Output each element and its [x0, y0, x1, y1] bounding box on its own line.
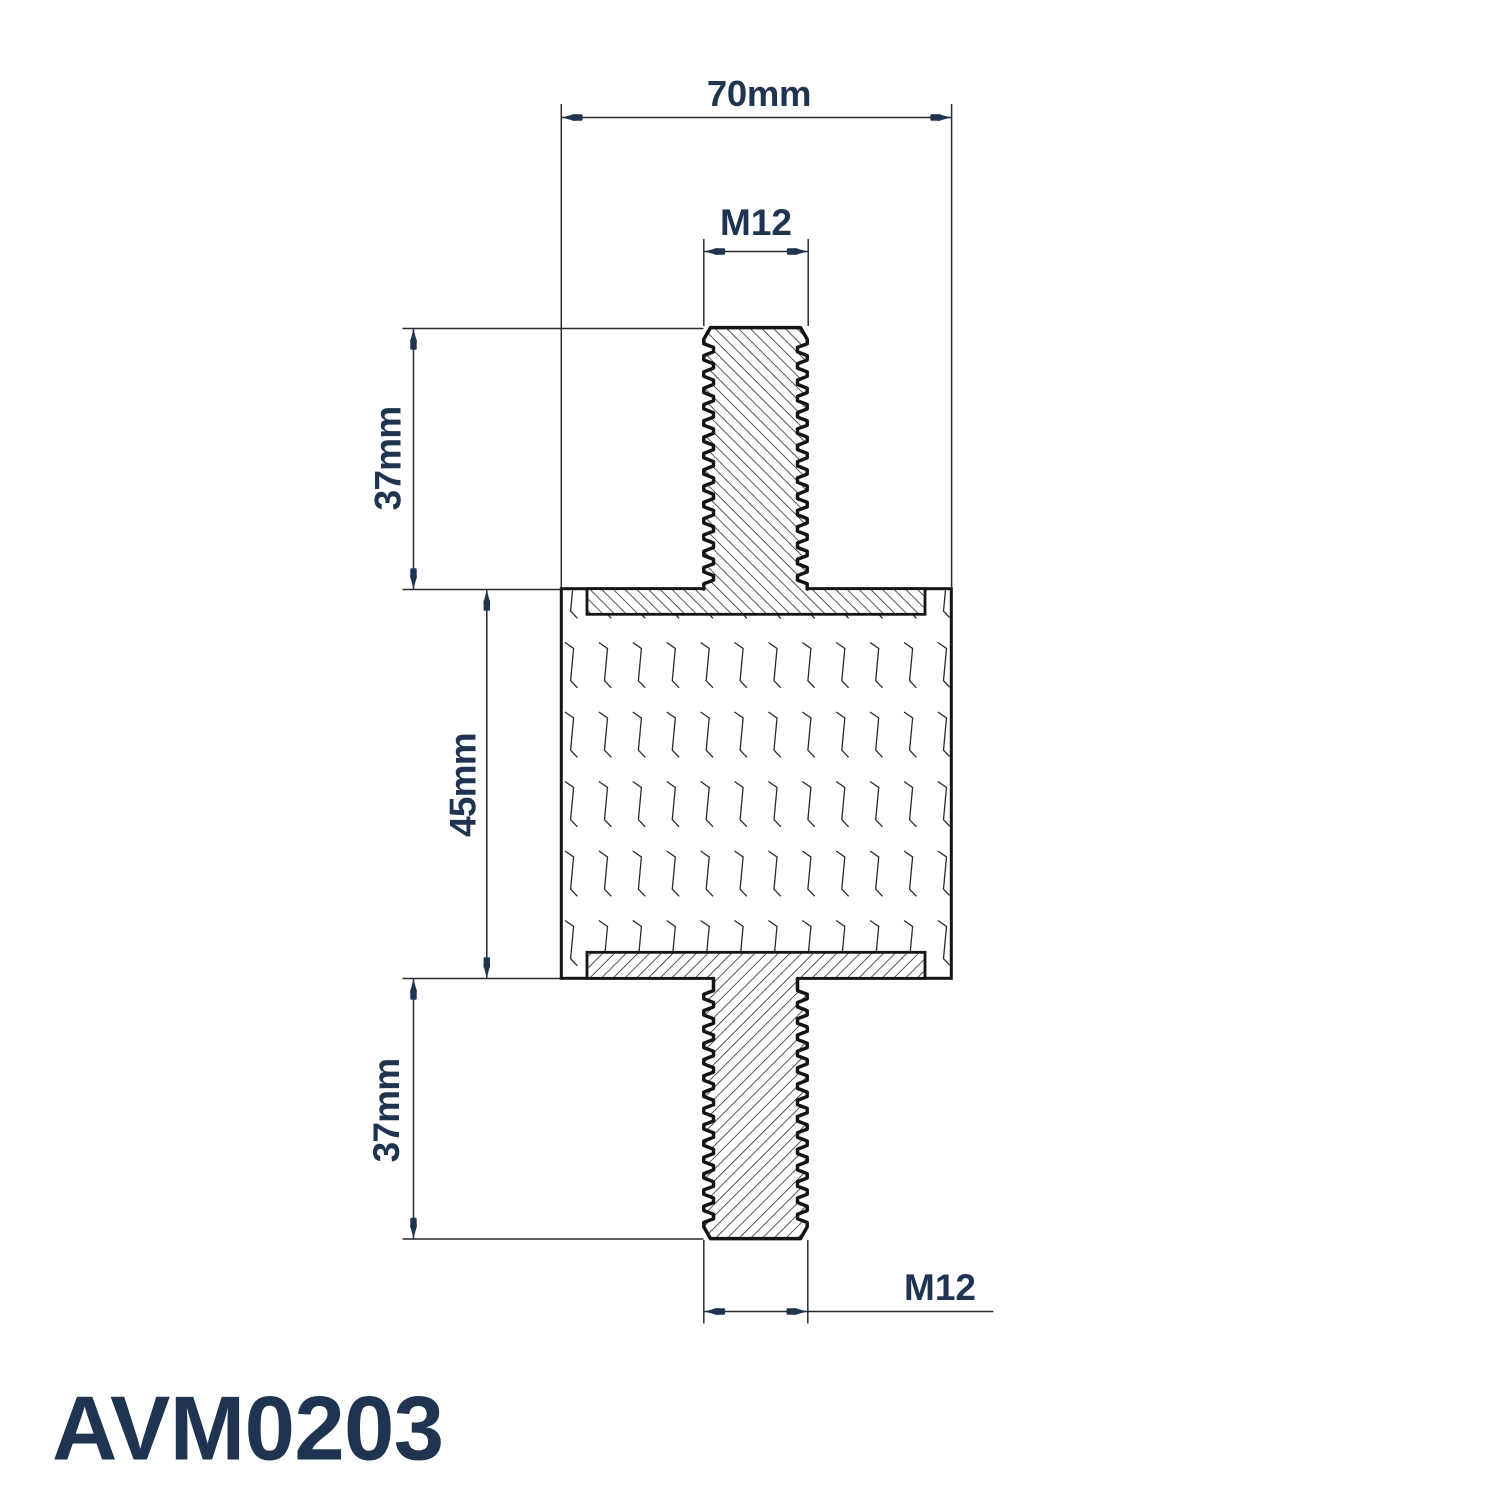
svg-text:M12: M12 [720, 202, 792, 243]
svg-text:70mm: 70mm [707, 73, 811, 114]
svg-text:M12: M12 [904, 1267, 976, 1308]
svg-text:37mm: 37mm [367, 407, 408, 511]
svg-text:37mm: 37mm [366, 1059, 407, 1163]
svg-text:AVM0203: AVM0203 [52, 1379, 444, 1480]
svg-text:45mm: 45mm [443, 733, 484, 837]
